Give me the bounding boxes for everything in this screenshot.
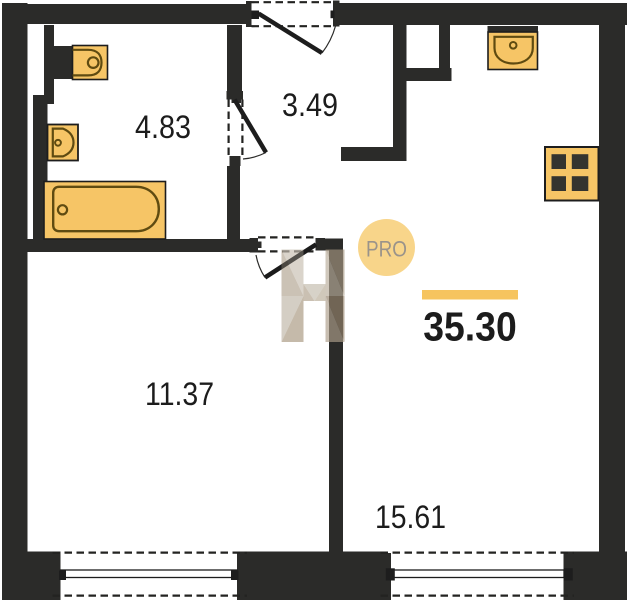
svg-text:PRO: PRO: [366, 237, 407, 262]
svg-text:15.61: 15.61: [375, 499, 446, 535]
svg-text:11.37: 11.37: [145, 376, 214, 412]
svg-text:35.30: 35.30: [423, 304, 517, 350]
svg-text:4.83: 4.83: [135, 109, 191, 145]
svg-text:3.49: 3.49: [282, 87, 338, 123]
